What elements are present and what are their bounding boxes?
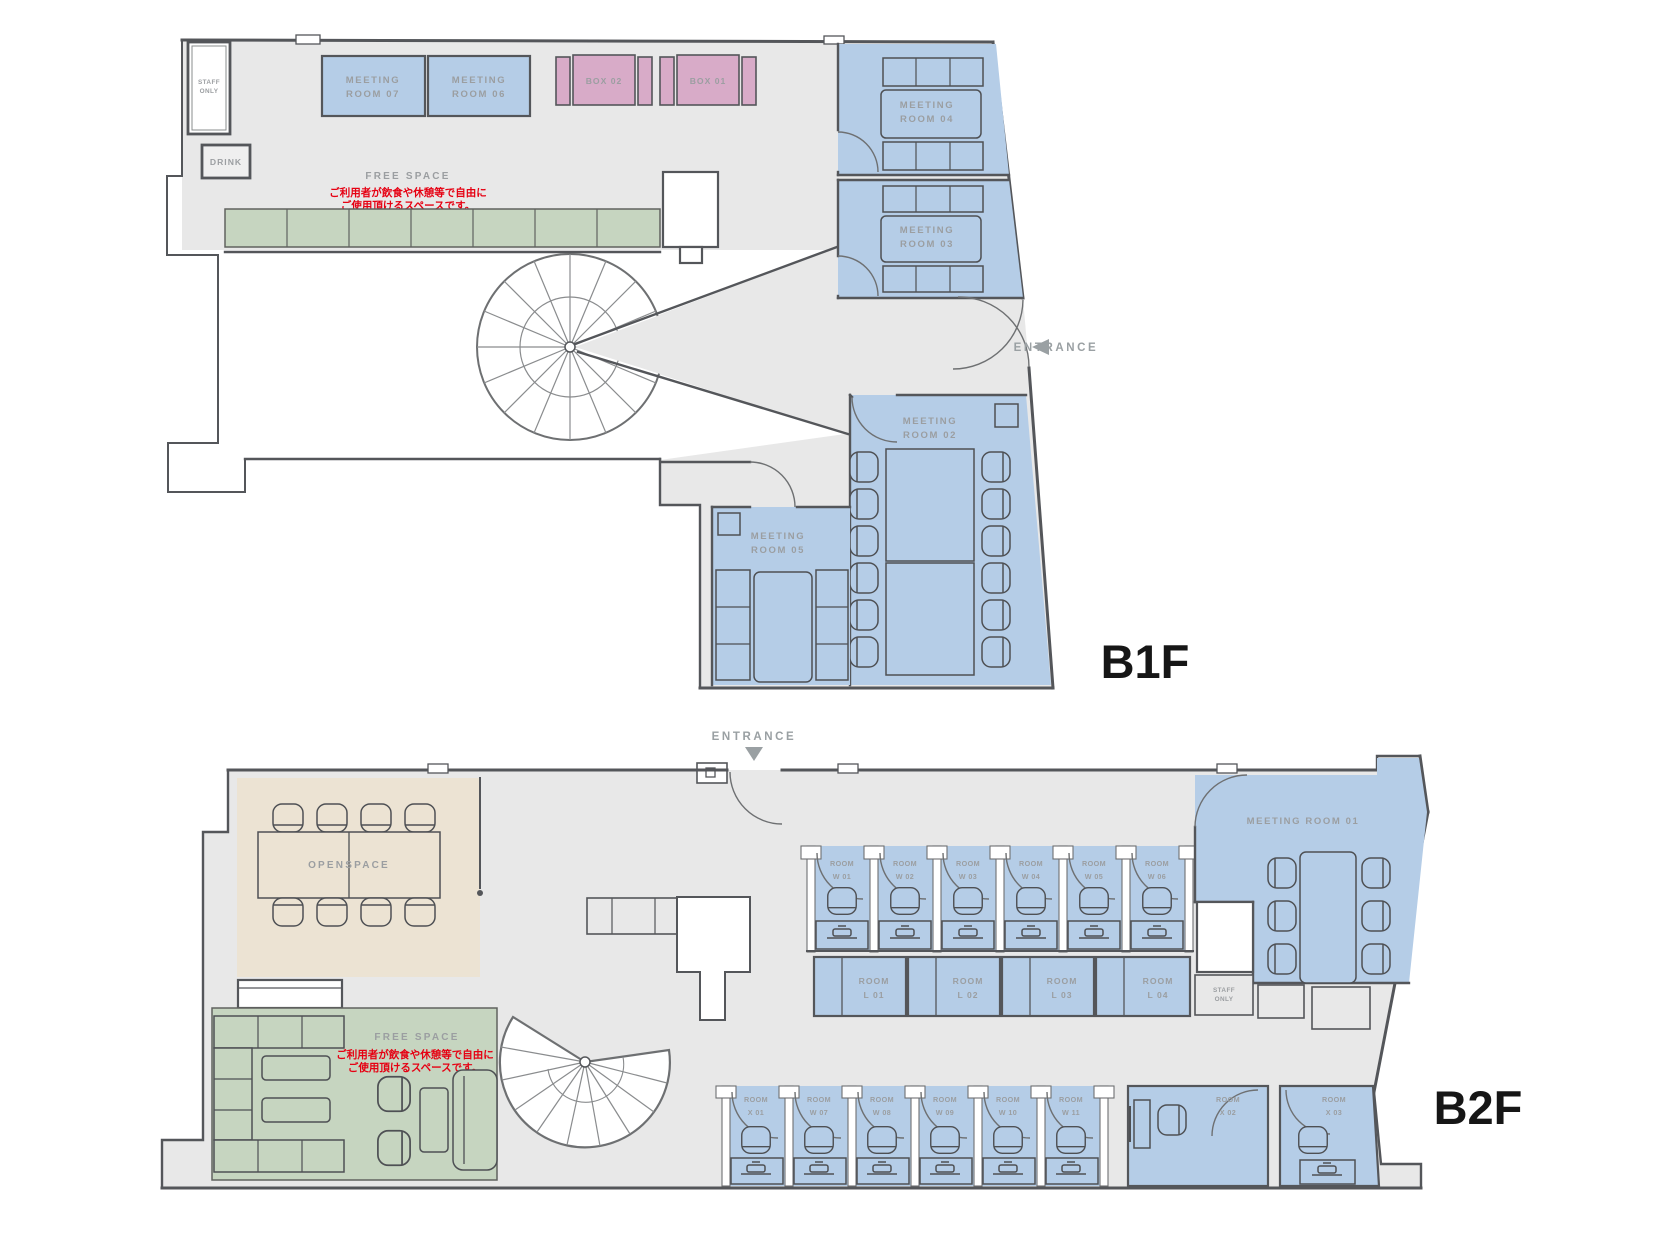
b2f-floor-label: B2F (1434, 1081, 1523, 1134)
room-label: W 02 (896, 872, 914, 881)
b2f-free-space-note-1: ご利用者が飲食や休憩等で自由に (336, 1048, 494, 1061)
room-label: ROOM (807, 1095, 831, 1104)
room-label: ROOM (996, 1095, 1020, 1104)
b2f-room-l02: ROOM L 02 (908, 957, 1000, 1016)
b1f-elevator (663, 172, 718, 247)
b2f-staff-only-label-1: STAFF (1213, 987, 1235, 994)
b2f-l-room-row: ROOM L 01 ROOM L 02 ROOM L 03 ROOM L 04 (814, 957, 1190, 1016)
room-label: ROOM 07 (346, 89, 400, 100)
b1f-free-space-bench (225, 209, 660, 247)
b2f-room-l03: ROOM L 03 (1002, 957, 1094, 1016)
b1f-spiral-staircase (477, 244, 848, 440)
b1f-box-02: BOX 02 (556, 55, 652, 105)
room-label: MEETING ROOM 01 (1247, 816, 1360, 827)
b1f-meeting-room-03: MEETING ROOM 03 (838, 180, 1023, 298)
b2f-meeting-room-01-furniture (1268, 852, 1390, 983)
room-label: ROOM (1047, 976, 1078, 986)
room-label: ROOM (870, 1095, 894, 1104)
b2f-room-x03: ROOM X 03 (1280, 1086, 1379, 1186)
room-label: MEETING (900, 100, 954, 111)
b1f-meeting-room-05: MEETING ROOM 05 (712, 507, 850, 685)
floorplan-canvas: STAFF ONLY DRINK MEETING ROOM 07 MEETING… (0, 0, 1667, 1260)
b2f-entrance-label: ENTRANCE (712, 731, 797, 743)
floorplan-page: STAFF ONLY DRINK MEETING ROOM 07 MEETING… (0, 0, 1667, 1260)
b2f-booth-row-top: ROOM W 01 ROOM W 02 ROOM W 03 ROOM W 04 … (801, 846, 1199, 952)
b1f-free-space-note-1: ご利用者が飲食や休憩等で自由に (329, 186, 487, 199)
room-label: ROOM 04 (900, 114, 954, 125)
b1f-entrance-label: ENTRANCE (1014, 342, 1099, 354)
window-tick (1217, 764, 1237, 773)
room-label: ROOM (1059, 1095, 1083, 1104)
b2f-openspace-label: OPENSPACE (308, 860, 390, 871)
b2f-booth-row-bottom: ROOM X 01 ROOM W 07 ROOM W 08 ROOM W 09 … (716, 1086, 1114, 1186)
room-label: ROOM (1145, 859, 1169, 868)
room-label: ROOM (933, 1095, 957, 1104)
room-label: X 02 (1220, 1108, 1236, 1117)
room-label: W 05 (1085, 872, 1103, 881)
b1f-meeting-room-02-screen (995, 404, 1018, 427)
box-label: BOX 02 (586, 76, 623, 86)
room-label: L 03 (1051, 990, 1072, 1000)
b2f-shelf (238, 980, 342, 1008)
room-label: ROOM 03 (900, 239, 954, 250)
room-label: ROOM (953, 976, 984, 986)
room-label: L 01 (863, 990, 884, 1000)
room-label: ROOM (1216, 1095, 1240, 1104)
room-label: MEETING (452, 75, 506, 86)
b1f-staff-only-label-2: ONLY (200, 88, 219, 95)
b1f-plan: STAFF ONLY DRINK MEETING ROOM 07 MEETING… (167, 35, 1189, 688)
room-label: ROOM (1322, 1095, 1346, 1104)
b1f-meeting-room-06: MEETING ROOM 06 (428, 56, 530, 116)
b2f-cabinet (1258, 985, 1304, 1018)
room-label: X 03 (1326, 1108, 1342, 1117)
room-label: MEETING (900, 225, 954, 236)
b1f-meeting-room-07: MEETING ROOM 07 (322, 56, 425, 116)
room-label: ROOM 05 (751, 545, 805, 556)
b2f-room-l04: ROOM L 04 (1096, 957, 1190, 1016)
b1f-meeting-room-05-furniture (716, 570, 848, 682)
room-label: MEETING (751, 531, 805, 542)
box-label: BOX 01 (690, 76, 727, 86)
b2f-free-space: FREE SPACE ご利用者が飲食や休憩等で自由に ご使用頂けるスペースです。 (212, 1008, 497, 1180)
window-tick (838, 764, 858, 773)
window-tick (428, 764, 448, 773)
room-label: ROOM (1082, 859, 1106, 868)
b2f-staff-only-room: STAFF ONLY (1195, 975, 1253, 1015)
room-label: ROOM (893, 859, 917, 868)
b1f-box-01: BOX 01 (660, 55, 756, 105)
room-label: ROOM (830, 859, 854, 868)
b1f-staff-only-label-1: STAFF (198, 79, 220, 86)
room-label: ROOM 02 (903, 430, 957, 441)
b2f-free-space-label: FREE SPACE (374, 1032, 459, 1043)
room-label: ROOM (1019, 859, 1043, 868)
b2f-closet (1197, 902, 1253, 972)
b1f-meeting-room-04: MEETING ROOM 04 (838, 44, 1009, 175)
window-tick (824, 36, 844, 44)
entrance-arrow-icon (745, 747, 763, 761)
b2f-cabinet (1312, 987, 1370, 1029)
room-label: W 03 (959, 872, 977, 881)
room-label: W 04 (1022, 872, 1040, 881)
room-label: MEETING (903, 416, 957, 427)
b1f-meeting-room-05-screen (718, 513, 740, 535)
room-label: L 04 (1147, 990, 1168, 1000)
room-label: W 09 (936, 1108, 954, 1117)
room-label: W 01 (833, 872, 851, 881)
window-tick (296, 35, 320, 44)
room-label: ROOM (1143, 976, 1174, 986)
room-label: W 07 (810, 1108, 828, 1117)
b1f-drink-label: DRINK (210, 157, 242, 167)
room-label: ROOM (744, 1095, 768, 1104)
b1f-meeting-room-02: MEETING ROOM 02 (850, 395, 1051, 685)
b1f-free-space-label: FREE SPACE (365, 171, 450, 182)
b2f-staff-only-label-2: ONLY (1215, 996, 1234, 1003)
room-label: X 01 (748, 1108, 764, 1117)
b2f-openspace: OPENSPACE (237, 778, 483, 977)
room-label: W 08 (873, 1108, 891, 1117)
room-label: ROOM (956, 859, 980, 868)
b2f-room-x02: ROOM X 02 (1128, 1086, 1268, 1186)
b1f-drink-station: DRINK (202, 145, 250, 178)
room-label: L 02 (957, 990, 978, 1000)
room-label: ROOM 06 (452, 89, 506, 100)
room-label: W 10 (999, 1108, 1017, 1117)
b2f-plan: ENTRANCE OPENSPACE FREE (162, 731, 1522, 1188)
b1f-floor-label: B1F (1101, 635, 1190, 688)
room-label: W 06 (1148, 872, 1166, 881)
b1f-service-box (680, 247, 702, 263)
room-label: ROOM (859, 976, 890, 986)
room-label: W 11 (1062, 1108, 1080, 1117)
b2f-room-l01: ROOM L 01 (814, 957, 906, 1016)
room-label: MEETING (346, 75, 400, 86)
b2f-counter (587, 898, 677, 934)
b1f-staff-only-room: STAFF ONLY (188, 42, 230, 134)
